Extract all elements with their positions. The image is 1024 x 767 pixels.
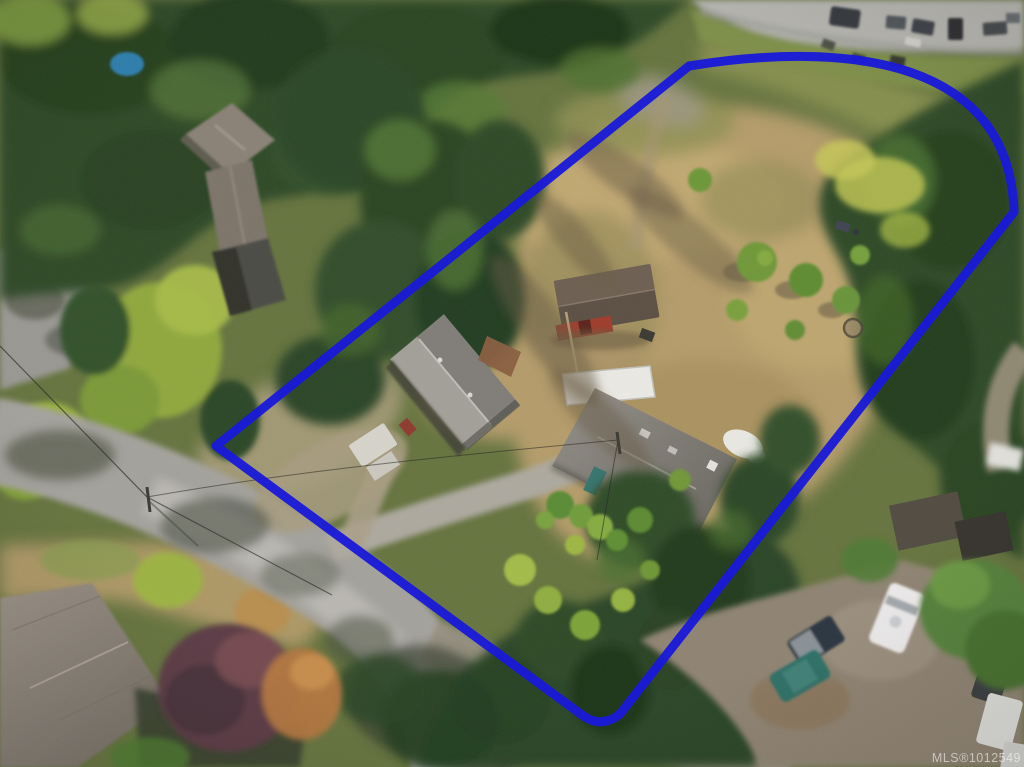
vignette: [0, 0, 1024, 767]
aerial-photo: MLS®1012549: [0, 0, 1024, 767]
mls-watermark: MLS®1012549: [932, 751, 1021, 765]
aerial-photo-canvas: MLS®1012549: [0, 0, 1024, 767]
